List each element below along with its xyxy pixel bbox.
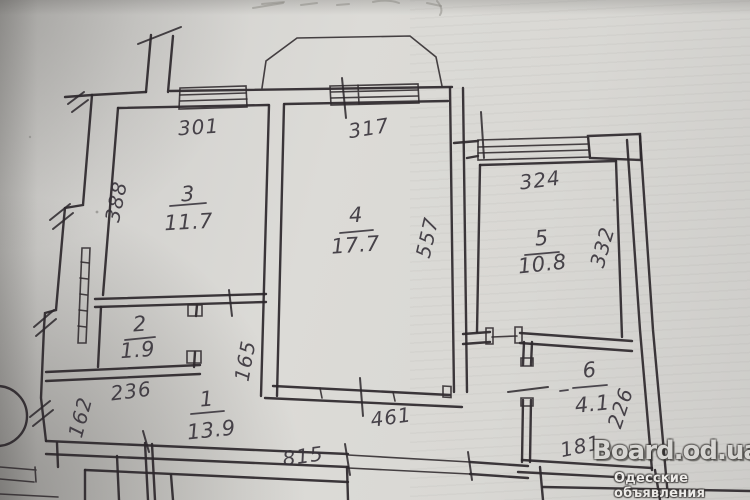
room-6-number: 6 [581, 357, 597, 382]
dim-332: 332 [585, 224, 619, 270]
room-6-area: 4.1 [574, 390, 611, 418]
floor-plan-photo: 301 317 324 388 557 332 236 162 165 815 … [0, 0, 750, 500]
watermark-subtitle: Одесские объявления [614, 471, 750, 500]
room-4-area: 17.7 [330, 231, 380, 258]
dim-317: 317 [347, 113, 391, 143]
watermark-title: Board.od.ua [592, 436, 750, 466]
dim-301: 301 [177, 114, 220, 141]
room-4-number: 4 [348, 203, 363, 228]
dim-557: 557 [411, 215, 444, 261]
dim-165: 165 [230, 338, 261, 383]
dim-162: 162 [63, 394, 97, 440]
room-5-area: 10.8 [517, 250, 568, 279]
dimension-labels: 301 317 324 388 557 332 236 162 165 815 … [63, 113, 638, 471]
room-3-area: 11.7 [164, 209, 214, 236]
dim-324: 324 [518, 166, 562, 195]
dim-461: 461 [369, 402, 413, 431]
room-5-number: 5 [534, 225, 549, 250]
room-2-number: 2 [132, 312, 147, 337]
dim-388: 388 [100, 179, 132, 224]
dim-236: 236 [109, 377, 153, 406]
room-labels: 3 11.7 4 17.7 5 10.8 2 1.9 1 13.9 6 4.1 [119, 182, 611, 445]
balcony-outline [262, 36, 442, 88]
room-1-number: 1 [199, 386, 214, 411]
room-3-number: 3 [180, 182, 195, 207]
room-1-area: 13.9 [186, 416, 237, 445]
floor-plan-drawing: 301 317 324 388 557 332 236 162 165 815 … [0, 0, 750, 500]
room-2-area: 1.9 [119, 337, 155, 363]
